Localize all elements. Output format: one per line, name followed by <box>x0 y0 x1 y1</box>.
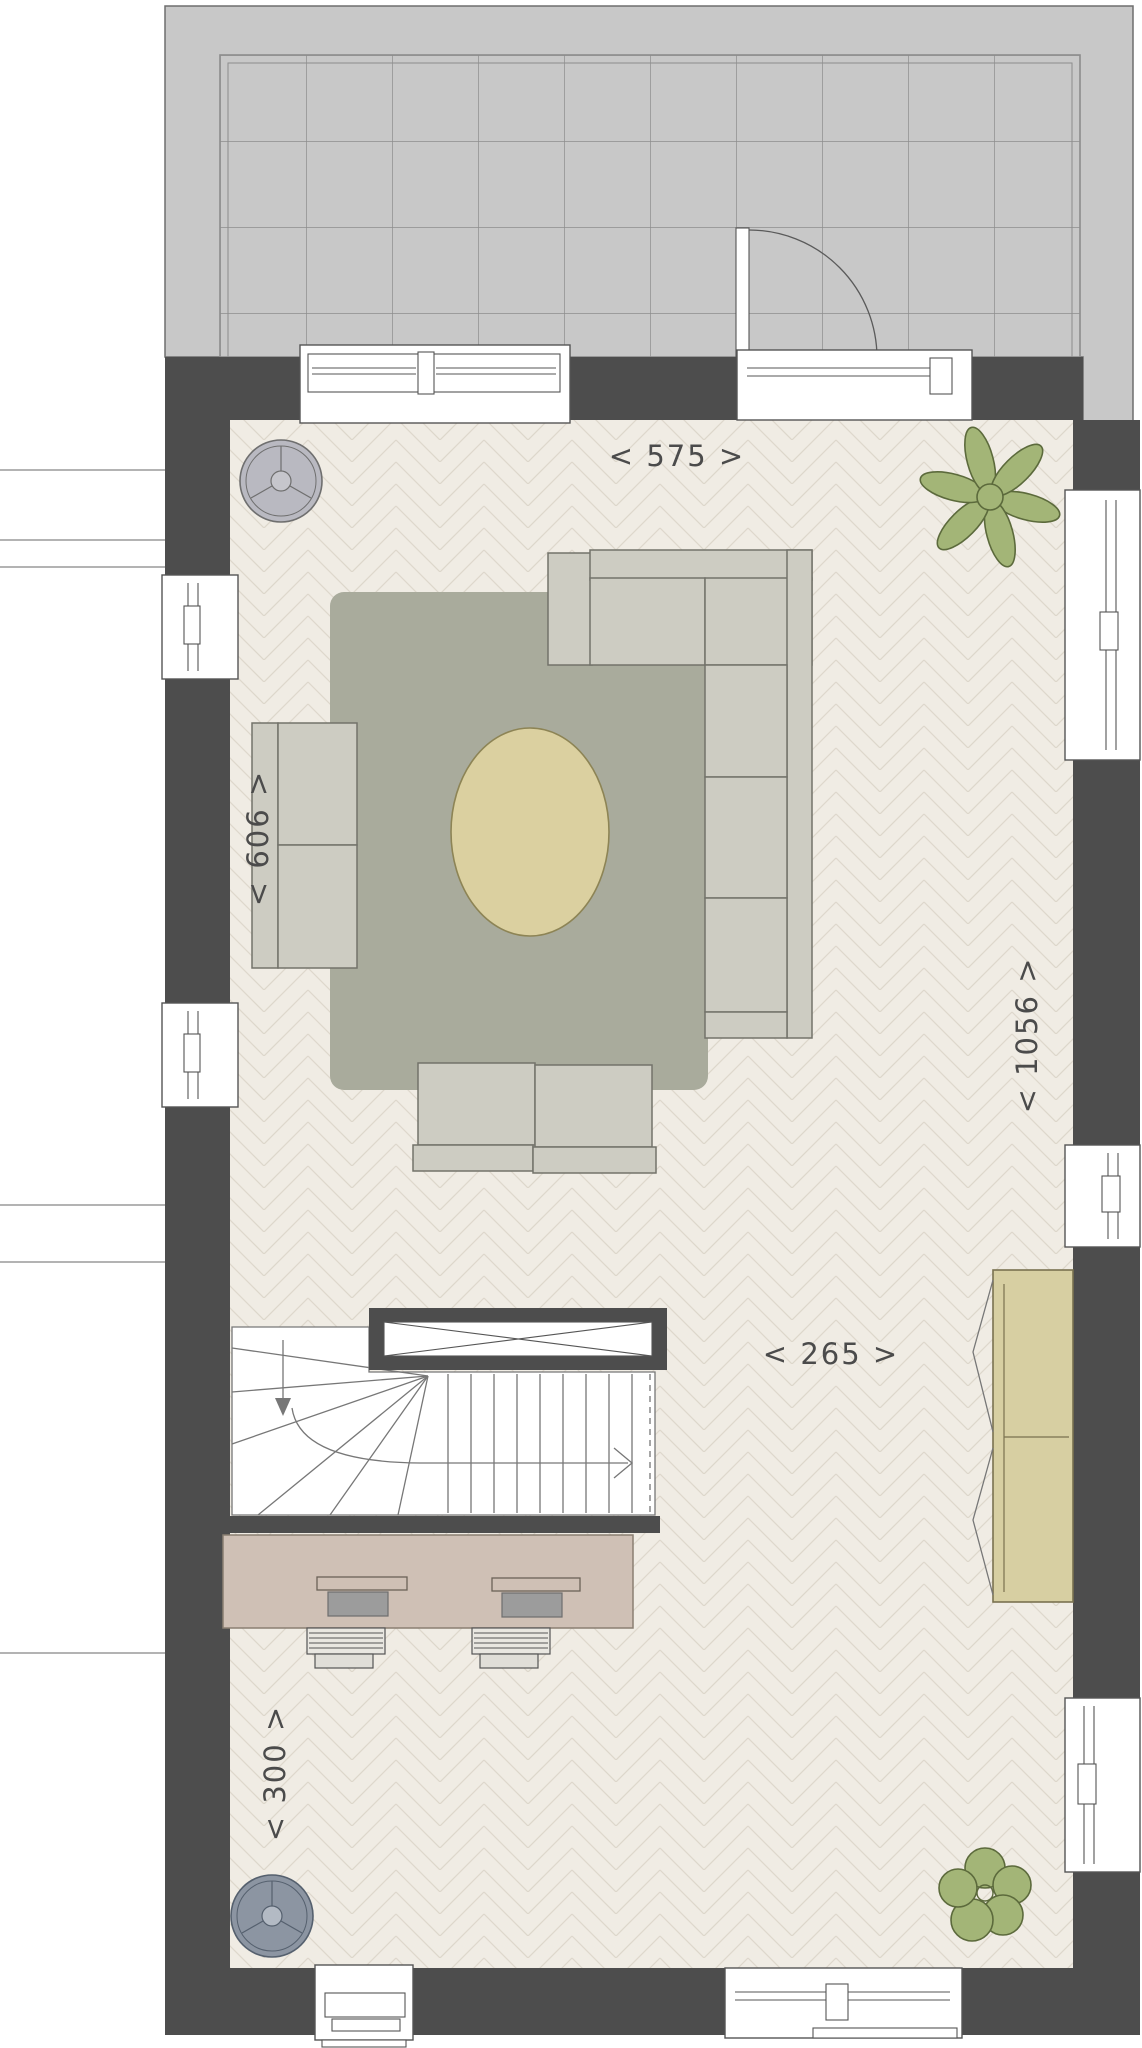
sofa-seat <box>705 777 787 898</box>
floor-plan: < 575 > < 606 > < 1056 > < 265 > < 300 > <box>0 0 1142 2048</box>
oval-coffee-table <box>451 728 609 936</box>
round-fixture-top <box>240 440 322 522</box>
armchair-cushion <box>278 845 357 968</box>
window-left-lower <box>162 1003 238 1107</box>
round-fixture-bottom <box>231 1875 313 1957</box>
sofa-seat <box>590 578 705 665</box>
floor-plan-drawing: < 575 > < 606 > < 1056 > < 265 > < 300 > <box>0 0 1142 2048</box>
bench-cushion <box>418 1063 535 1145</box>
office-chair <box>307 1628 385 1668</box>
sofa-back-right <box>787 550 812 1038</box>
staircase <box>230 1308 667 1533</box>
sofa-seat <box>705 665 787 777</box>
monitor-base <box>502 1593 562 1617</box>
sofa-armrest-left <box>548 553 592 665</box>
window-left-upper <box>162 575 238 679</box>
door-bottom <box>315 1965 413 2047</box>
window-top <box>300 345 570 423</box>
terrace-door-leaf <box>736 228 749 358</box>
monitor-base <box>328 1592 388 1616</box>
wall-bottom <box>165 1968 1140 2035</box>
monitor-screen <box>492 1578 580 1591</box>
window-bottom <box>725 1968 962 2038</box>
window-right-middle <box>1065 1145 1140 1247</box>
sofa-armrest-bottom <box>705 1012 787 1038</box>
terrace-tiles <box>220 55 1080 357</box>
bench <box>413 1063 656 1173</box>
sofa-seat <box>705 898 787 1012</box>
dimension-label-right: < 1056 > <box>1010 957 1044 1114</box>
office-chair <box>472 1628 550 1668</box>
window-right-upper <box>1065 490 1140 760</box>
door-terrace <box>737 350 972 420</box>
dimension-label-left: < 606 > <box>241 770 275 906</box>
armchair-cushion <box>278 723 357 845</box>
bench-back <box>533 1147 656 1173</box>
stair-beam <box>230 1516 660 1533</box>
bench-cushion <box>535 1065 652 1147</box>
dimension-label-top: < 575 > <box>609 439 745 473</box>
dimension-label-middle: < 265 > <box>763 1337 899 1371</box>
bench-back <box>413 1145 533 1171</box>
dimension-label-bottom: < 300 > <box>258 1705 292 1841</box>
monitor-screen <box>317 1577 407 1590</box>
window-right-lower <box>1065 1698 1140 1872</box>
sofa-back-top <box>590 550 812 580</box>
